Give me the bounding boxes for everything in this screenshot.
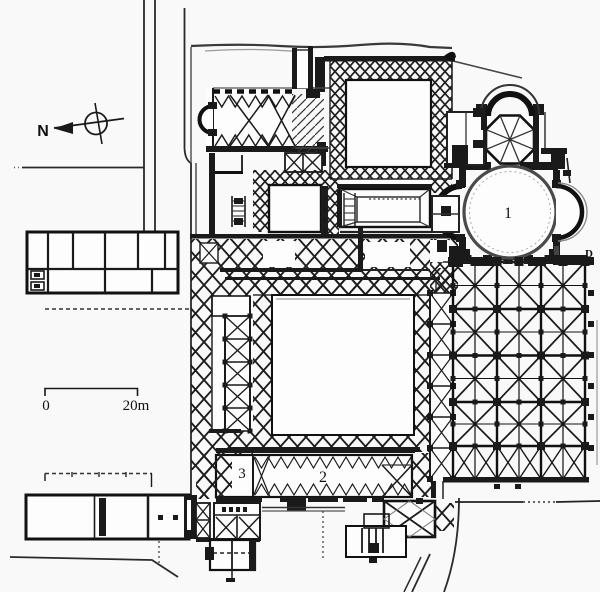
svg-text:20m: 20m [123,398,150,414]
svg-text:2: 2 [319,469,327,486]
svg-text:3: 3 [238,466,246,482]
svg-text:0: 0 [42,398,50,414]
svg-text:N: N [37,123,49,140]
svg-text:1: 1 [504,205,512,222]
